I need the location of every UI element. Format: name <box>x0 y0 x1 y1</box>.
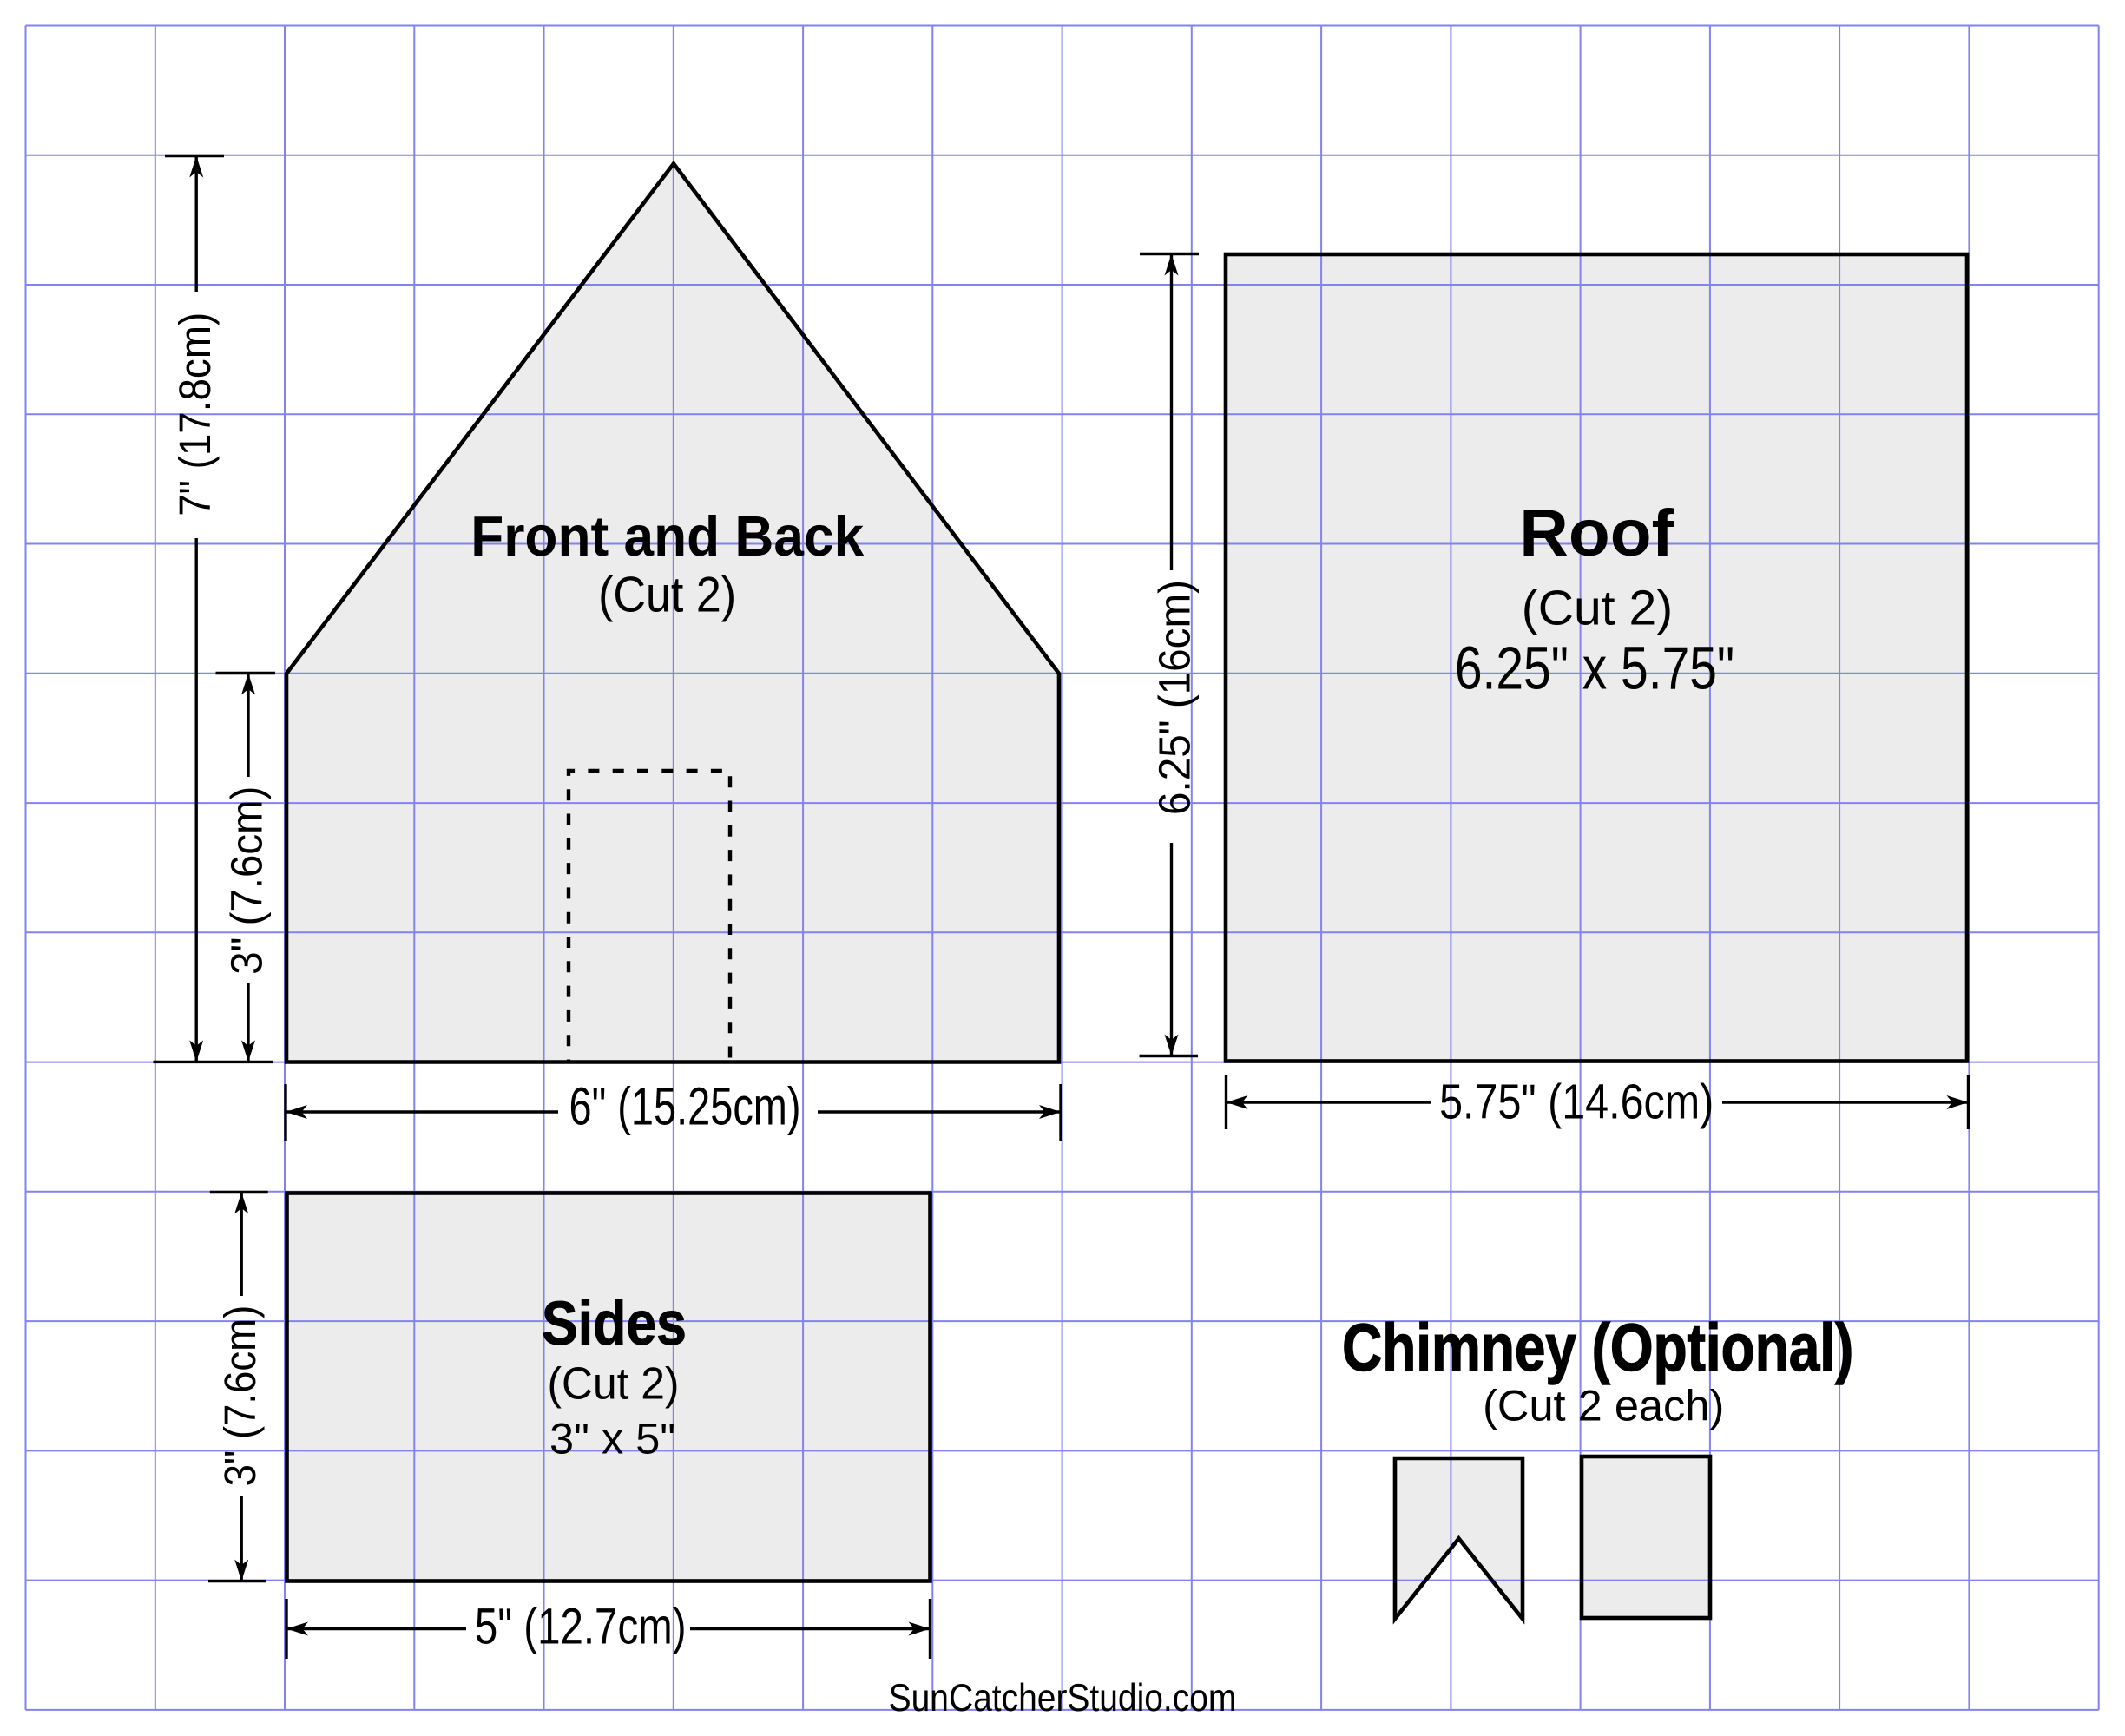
svg-text:Front and Back: Front and Back <box>470 505 864 568</box>
svg-text:SunCatcherStudio.com: SunCatcherStudio.com <box>889 1677 1237 1720</box>
svg-text:(Cut 2): (Cut 2) <box>598 568 736 623</box>
svg-text:7" (17.8cm): 7" (17.8cm) <box>170 312 220 516</box>
svg-text:3" (7.6cm): 3" (7.6cm) <box>221 786 271 975</box>
svg-text:5.75" (14.6cm): 5.75" (14.6cm) <box>1439 1075 1714 1129</box>
svg-text:(Cut 2): (Cut 2) <box>548 1359 680 1410</box>
svg-text:3" (7.6cm): 3" (7.6cm) <box>215 1305 265 1487</box>
svg-text:6.25" (16cm): 6.25" (16cm) <box>1150 580 1200 815</box>
svg-text:Chimney (Optional): Chimney (Optional) <box>1342 1311 1853 1385</box>
svg-text:6" (15.25cm): 6" (15.25cm) <box>569 1077 801 1136</box>
svg-text:Sides: Sides <box>542 1289 687 1358</box>
svg-text:(Cut 2): (Cut 2) <box>1522 581 1673 635</box>
svg-text:3" x 5": 3" x 5" <box>549 1415 675 1463</box>
svg-text:Roof: Roof <box>1519 496 1674 570</box>
svg-text:(Cut 2 each): (Cut 2 each) <box>1483 1382 1724 1430</box>
svg-text:5" (12.7cm): 5" (12.7cm) <box>475 1598 687 1654</box>
svg-text:6.25" x 5.75": 6.25" x 5.75" <box>1455 634 1734 701</box>
